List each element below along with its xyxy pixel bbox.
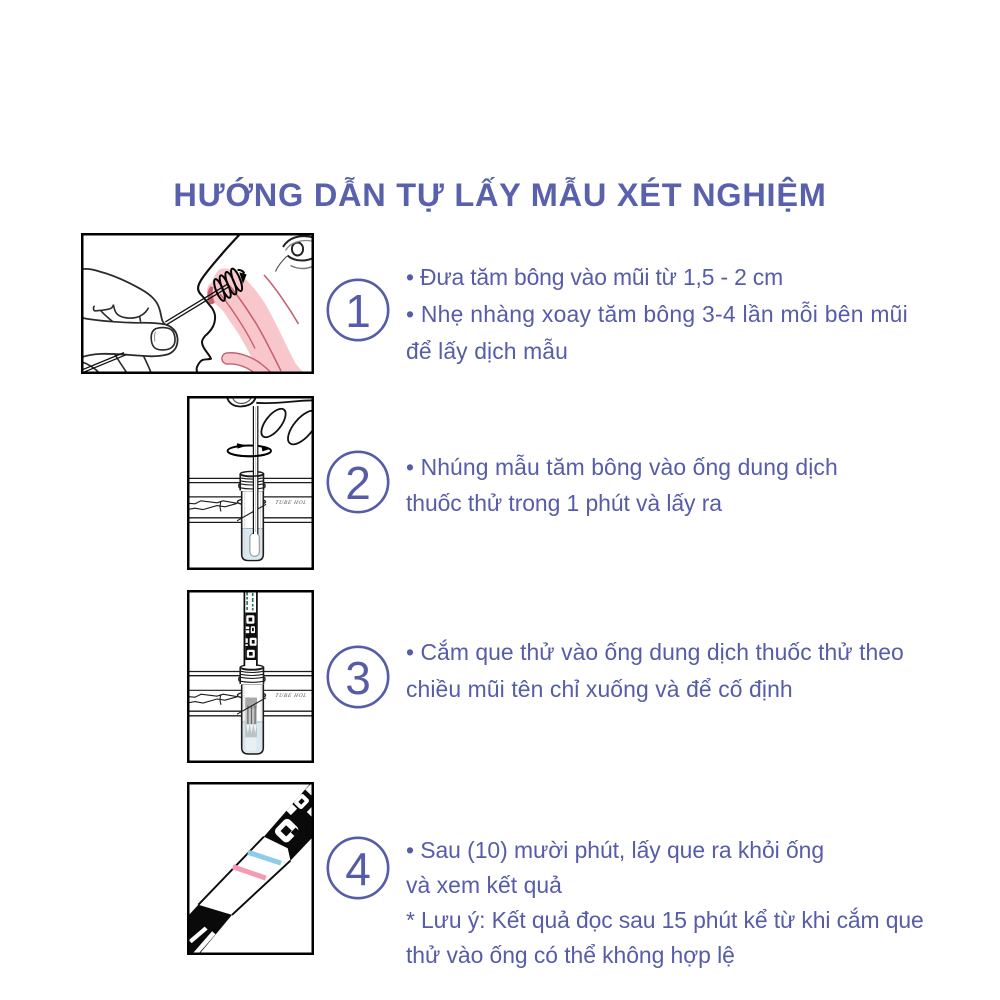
svg-text:TUBE HOL: TUBE HOL [275,693,308,699]
svg-text:TUBE HOL: TUBE HOL [275,500,308,506]
svg-text:2: 2 [345,457,371,509]
svg-text:1: 1 [345,285,371,337]
svg-text:4: 4 [345,843,371,895]
svg-text:3: 3 [345,652,371,704]
